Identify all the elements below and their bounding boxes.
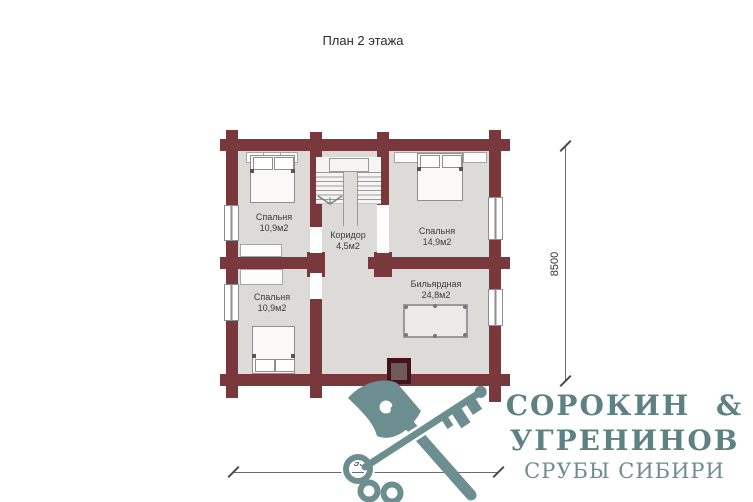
page-title: План 2 этажа: [263, 33, 463, 48]
bed-top-left: [250, 155, 295, 203]
room-name: Спальня: [387, 226, 487, 237]
billiard-pocket: [433, 304, 437, 308]
room-area: 14,9м2: [387, 237, 487, 248]
room-name: Бильярдная: [386, 279, 486, 290]
dimension-line: [565, 146, 566, 381]
bed-post: [252, 354, 256, 358]
billiard-pocket: [463, 333, 467, 337]
stairs-direction-arrow-icon: [317, 195, 343, 207]
billiard-pocket: [433, 334, 437, 338]
wall-left: [226, 130, 238, 398]
room-name: Спальня: [236, 292, 308, 303]
logo-line-1: СОРОКИН &: [498, 388, 751, 423]
bed-top-right: [417, 153, 463, 201]
wardrobe: [240, 269, 283, 285]
room-label-bedroom-top-right: Спальня 14,9м2: [387, 226, 487, 248]
logo-tagline: СРУБЫ СИБИРИ: [498, 458, 751, 484]
bed-pillow: [255, 359, 275, 372]
bed-post: [417, 167, 421, 171]
bed-bottom-left: [252, 326, 295, 374]
wall-top: [220, 139, 510, 151]
bed-post: [291, 169, 295, 173]
door-opening-bedroom-bottom-left: [310, 273, 322, 299]
window-left-top: [224, 205, 239, 241]
bed-post: [459, 167, 463, 171]
room-label-bedroom-bottom-left: Спальня 10,9м2: [236, 292, 308, 314]
room-label-bedroom-top-left: Спальня 10,9м2: [238, 212, 310, 234]
billiard-table: [403, 304, 468, 338]
room-label-billiard: Бильярдная 24,8м2: [386, 279, 486, 301]
axe-and-key-icon: [333, 374, 505, 502]
billiard-pocket: [404, 305, 408, 309]
room-area: 24,8м2: [386, 290, 486, 301]
staircase-landing: [329, 158, 369, 172]
wall-corridor-left-lower: [310, 298, 322, 398]
wardrobe: [240, 244, 282, 257]
logo-line-2: УГРЕНИНОВ: [498, 423, 751, 458]
window-right-bottom: [488, 289, 503, 326]
company-logo: СОРОКИН & УГРЕНИНОВ СРУБЫ СИБИРИ: [498, 388, 751, 484]
room-label-corridor: Коридор 4,5м2: [312, 230, 384, 252]
room-name: Спальня: [238, 212, 310, 223]
staircase-center-flight: [343, 172, 358, 226]
wall-right: [489, 130, 501, 402]
bed-pillow: [275, 359, 295, 372]
bed-post: [250, 169, 254, 173]
billiard-pocket: [463, 305, 467, 309]
dimension-value-vertical: 8500: [549, 246, 561, 282]
room-area: 4,5м2: [312, 241, 384, 252]
bed-pillow: [253, 157, 273, 170]
window-right-top: [488, 197, 503, 240]
room-area: 10,9м2: [238, 223, 310, 234]
bed-post: [291, 354, 295, 358]
room-name: Коридор: [312, 230, 384, 241]
billiard-pocket: [404, 333, 408, 337]
floor-plan-page: План 2 этажа: [0, 0, 753, 502]
room-area: 10,9м2: [236, 303, 308, 314]
wall-corridor-right-crossing: [374, 252, 392, 277]
bed-pillow: [420, 155, 440, 168]
